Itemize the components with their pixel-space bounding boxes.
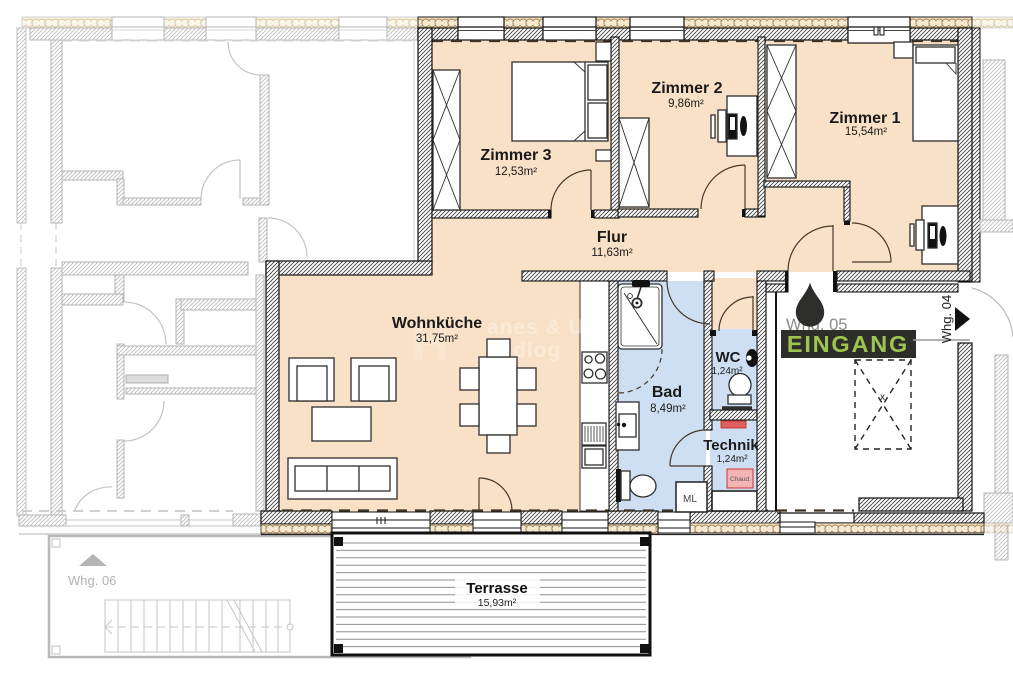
svg-text:Bad: Bad <box>652 384 682 401</box>
svg-text:Chaud.: Chaud. <box>730 476 751 483</box>
svg-text:Terrasse: Terrasse <box>466 580 527 597</box>
svg-text:1,24m²: 1,24m² <box>716 454 748 465</box>
svg-text:x: x <box>880 392 885 403</box>
svg-text:dlog: dlog <box>513 339 561 362</box>
svg-text:Whg. 06: Whg. 06 <box>68 573 116 588</box>
svg-text:Whg. 04: Whg. 04 <box>939 295 954 343</box>
svg-text:EINGANG: EINGANG <box>787 331 909 357</box>
svg-text:WC: WC <box>716 349 741 366</box>
svg-text:Zimmer 2: Zimmer 2 <box>651 80 722 97</box>
svg-text:8,49m²: 8,49m² <box>650 403 686 415</box>
svg-text:15,54m²: 15,54m² <box>845 126 887 138</box>
svg-text:1,24m²: 1,24m² <box>711 366 743 377</box>
svg-text:Wohnküche: Wohnküche <box>392 315 482 332</box>
svg-text:anes & Ulli: anes & Ulli <box>487 316 605 339</box>
svg-text:ML: ML <box>683 494 697 505</box>
svg-text:15,93m²: 15,93m² <box>478 597 517 609</box>
svg-text:Technik: Technik <box>703 437 759 454</box>
svg-text:Zimmer 3: Zimmer 3 <box>480 147 551 164</box>
svg-text:9,86m²: 9,86m² <box>668 98 704 110</box>
svg-text:31,75m²: 31,75m² <box>416 333 458 345</box>
svg-text:12,53m²: 12,53m² <box>495 166 537 178</box>
svg-text:11,63m²: 11,63m² <box>591 247 633 259</box>
svg-text:Flur: Flur <box>597 229 627 246</box>
svg-text:Zimmer 1: Zimmer 1 <box>829 110 900 127</box>
